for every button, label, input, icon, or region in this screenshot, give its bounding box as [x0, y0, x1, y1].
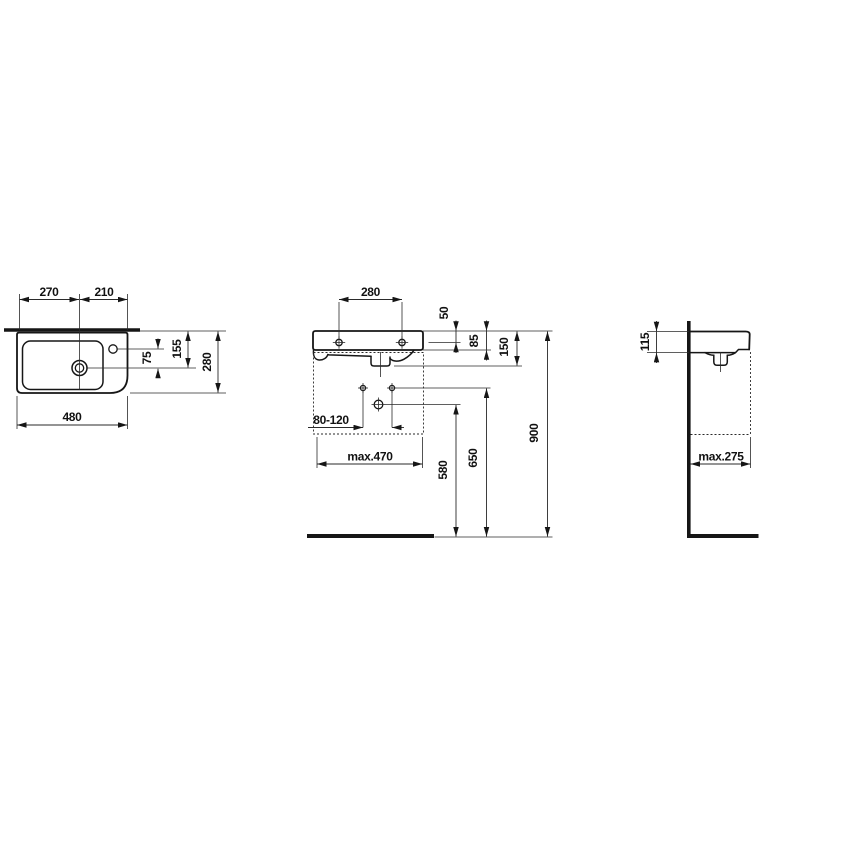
dim-label-650: 650	[466, 448, 480, 468]
dim-rim-to-holes: 50	[437, 306, 456, 353]
dim-label-max470: max.470	[347, 450, 393, 464]
floor-line	[687, 534, 759, 538]
dim-rim-to-apron: 85	[467, 321, 487, 361]
basin-profile-top	[691, 332, 750, 350]
basin-profile-underside	[691, 350, 750, 353]
floor-line	[307, 534, 434, 538]
dim-anchor-range: 80-120	[308, 413, 404, 428]
dim-label-max275: max.275	[698, 450, 744, 464]
dim-rim-thickness: 115	[638, 321, 689, 363]
drawing-canvas: 270 210 75 155 280 480	[0, 0, 868, 868]
dim-label-80-120: 80-120	[313, 413, 349, 427]
basin-front-outline	[313, 331, 423, 350]
dim-label-280-depth: 280	[200, 352, 214, 372]
dim-outlet-height: 580	[436, 405, 456, 537]
top-view: 270 210 75 155 280 480	[4, 285, 226, 429]
inner-bowl	[23, 341, 104, 390]
dim-label-270: 270	[39, 285, 59, 299]
dim-label-480: 480	[62, 410, 82, 424]
drain-cross	[372, 398, 386, 412]
dim-label-85: 85	[467, 334, 481, 347]
dim-rim-height: 900	[527, 332, 548, 537]
dim-label-580: 580	[436, 460, 450, 480]
dim-label-210: 210	[94, 285, 114, 299]
side-view: 115 max.275	[638, 321, 759, 538]
dim-label-155: 155	[170, 339, 184, 359]
dim-top-overall-width: 480	[17, 396, 128, 429]
dim-anchor-height: 650	[466, 389, 487, 537]
dim-top-widths: 270 210	[20, 285, 128, 330]
dim-max-depth: max.275	[691, 437, 751, 468]
dim-label-280-holes: 280	[361, 285, 381, 299]
dim-max-width: max.470	[317, 437, 423, 468]
dim-label-115: 115	[638, 332, 652, 351]
tap-hole	[109, 345, 117, 353]
dim-top-depths: 75 155 280	[130, 331, 226, 393]
dim-label-150: 150	[497, 337, 511, 357]
dim-rim-to-outlet: 150	[497, 332, 517, 366]
bowl-right-sweep	[390, 350, 414, 361]
dim-label-75: 75	[140, 351, 154, 364]
bowl-underside	[313, 351, 371, 361]
wall-line	[687, 321, 691, 538]
front-view: 280 80-120 max.470 50	[307, 285, 553, 538]
dim-label-50: 50	[437, 306, 451, 319]
technical-drawing: 270 210 75 155 280 480	[0, 0, 868, 868]
dim-label-900: 900	[527, 423, 541, 443]
